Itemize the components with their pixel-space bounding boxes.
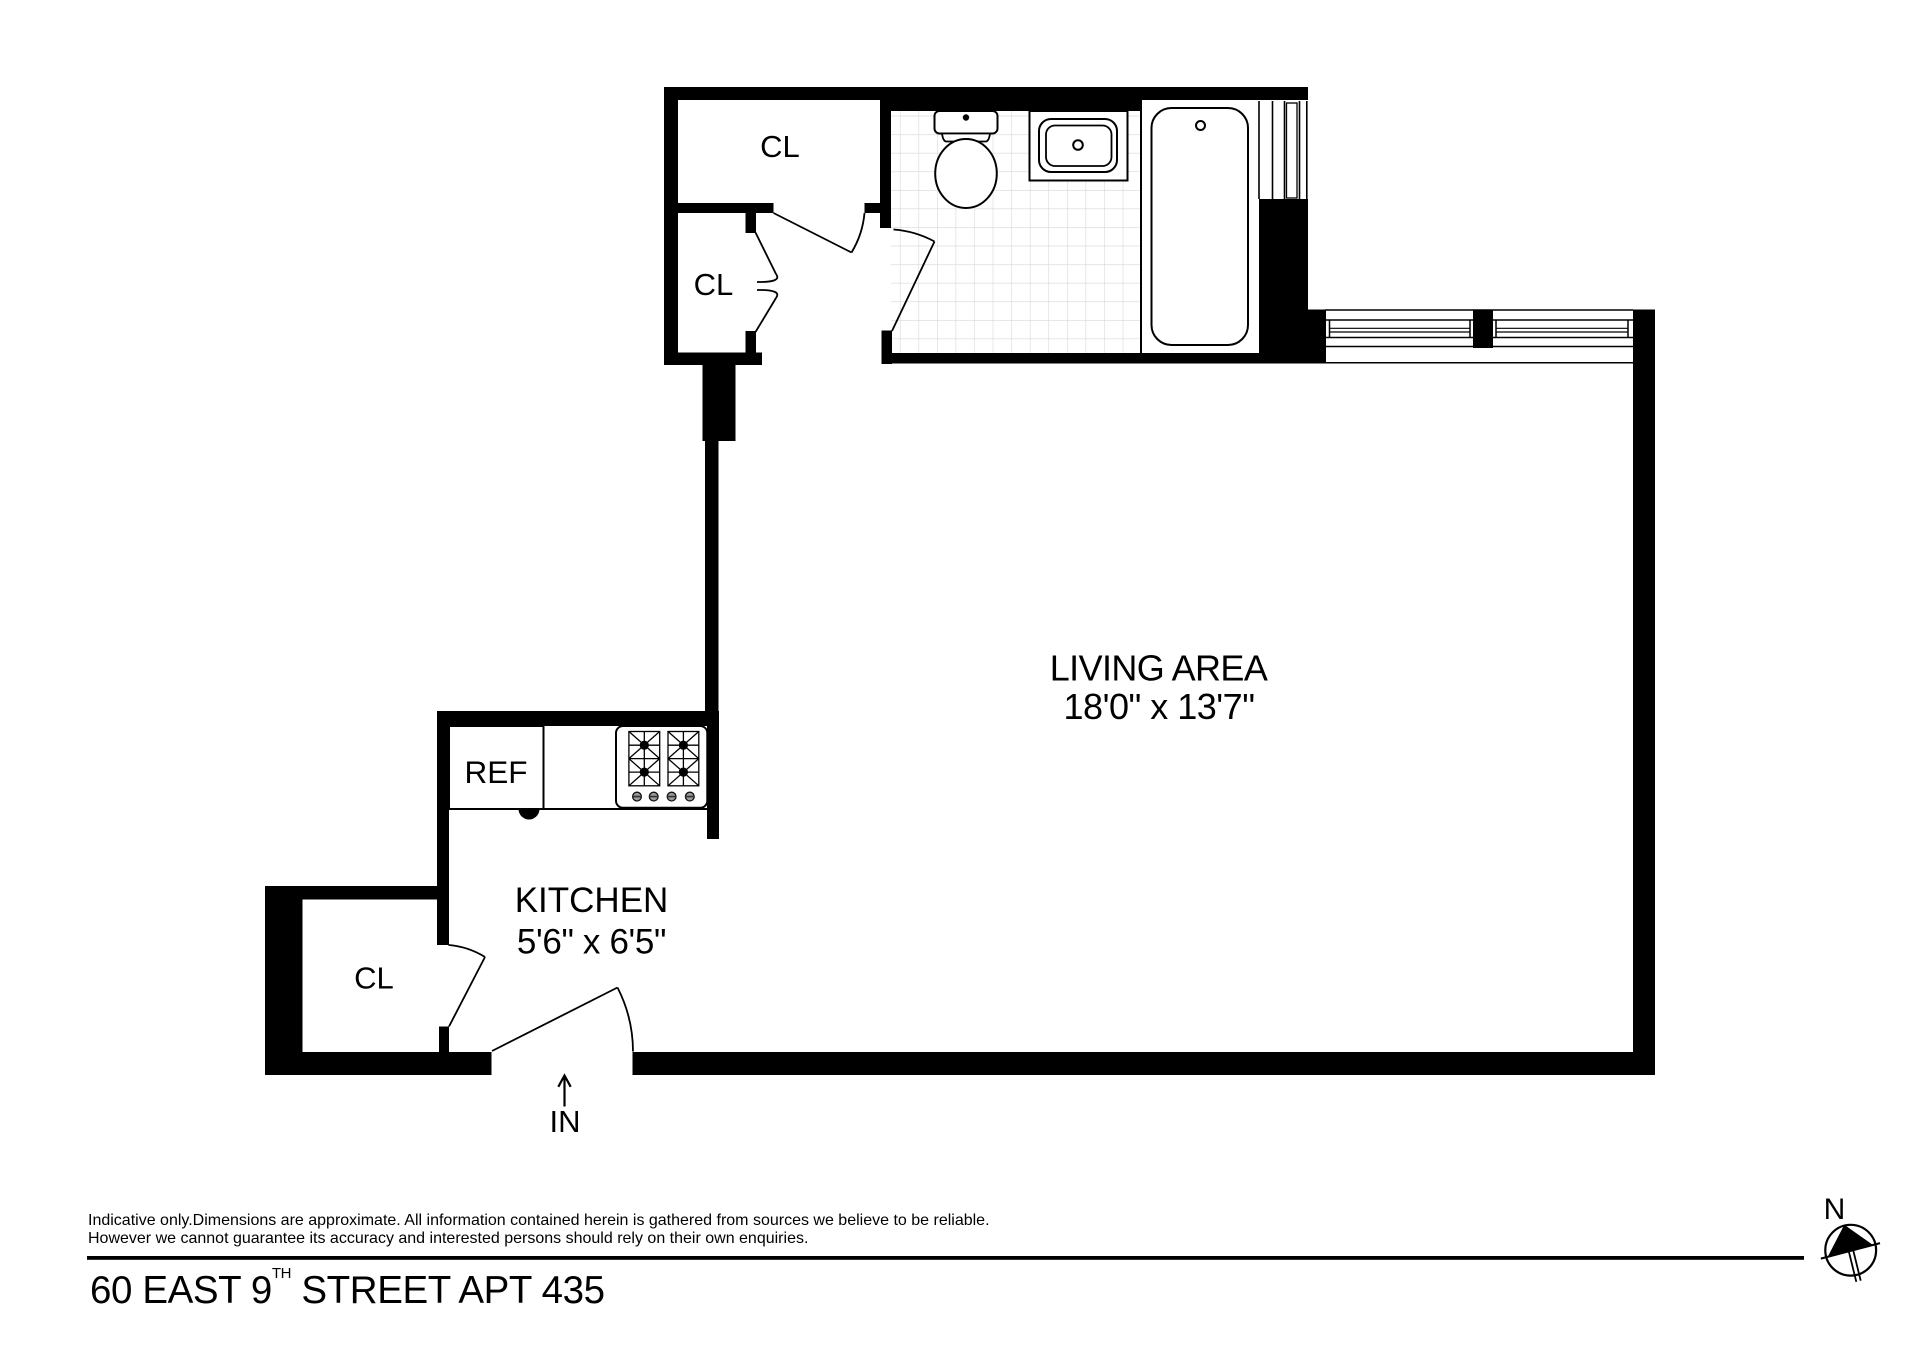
svg-text:LIVING AREA: LIVING AREA <box>1050 648 1268 689</box>
svg-text:18'0" x 13'7": 18'0" x 13'7" <box>1064 686 1255 727</box>
svg-text:Indicative only.Dimensions are: Indicative only.Dimensions are approxima… <box>88 1212 990 1229</box>
svg-text:KITCHEN: KITCHEN <box>515 881 669 920</box>
svg-text:IN: IN <box>550 1104 581 1139</box>
svg-text:CL: CL <box>694 267 734 302</box>
svg-text:CL: CL <box>354 961 394 996</box>
svg-text:REF: REF <box>465 754 528 790</box>
svg-text:60 EAST 9TH STREET APT 435: 60 EAST 9TH STREET APT 435 <box>90 1265 605 1312</box>
svg-text:N: N <box>1824 1193 1846 1226</box>
svg-text:CL: CL <box>760 129 800 164</box>
svg-text:However we cannot guarantee it: However we cannot guarantee its accuracy… <box>88 1230 808 1247</box>
svg-text:5'6" x 6'5": 5'6" x 6'5" <box>517 923 666 962</box>
